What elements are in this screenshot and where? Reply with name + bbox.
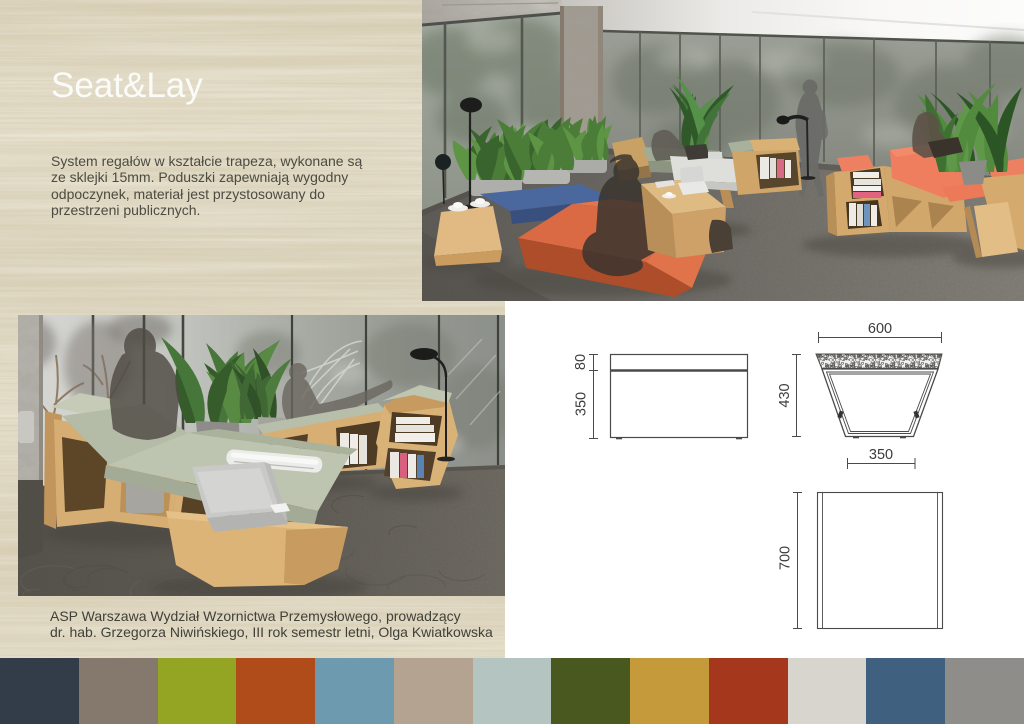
svg-text:430: 430 [777, 383, 793, 407]
svg-text:350: 350 [869, 447, 893, 463]
svg-text:80: 80 [573, 354, 589, 370]
svg-text:700: 700 [778, 546, 794, 570]
svg-text:600: 600 [868, 321, 892, 337]
svg-text:350: 350 [574, 392, 590, 416]
